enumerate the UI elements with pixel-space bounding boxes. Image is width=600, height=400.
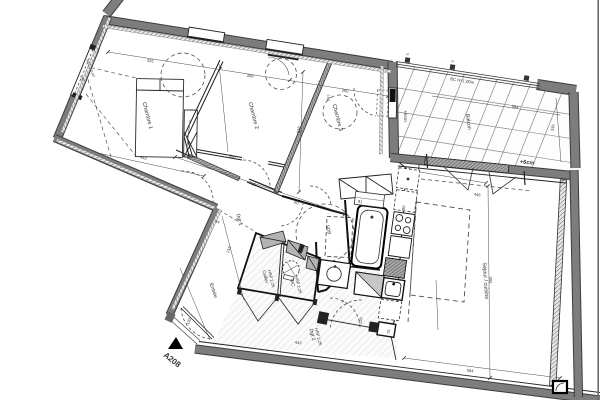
svg-text:+6cm: +6cm bbox=[402, 110, 408, 122]
svg-text:555: 555 bbox=[488, 276, 493, 284]
svg-text:P: P bbox=[342, 299, 345, 304]
